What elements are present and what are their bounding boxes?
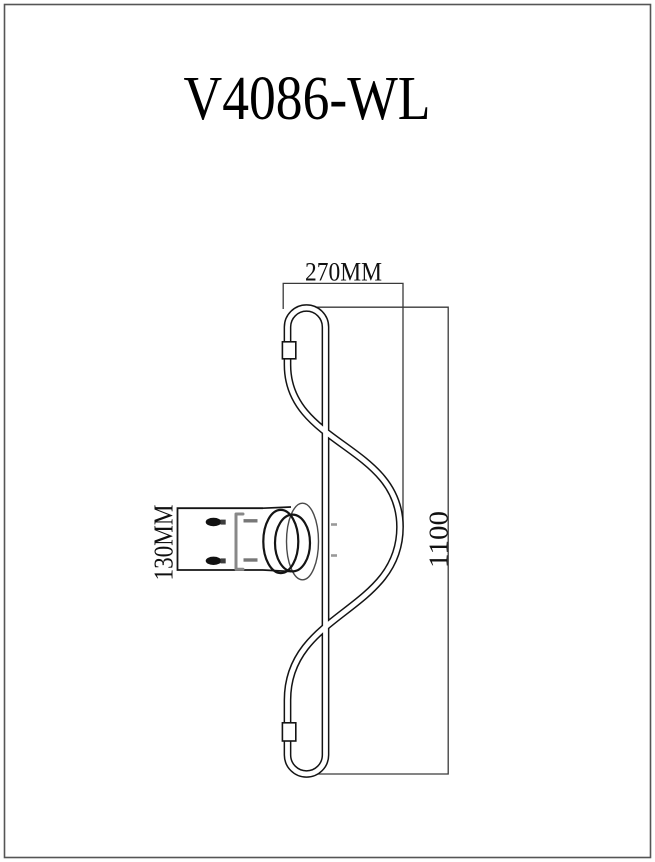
- screw-icon: [206, 557, 222, 565]
- spec-sheet-page: V4086-WL: [0, 0, 655, 862]
- tube-connector-top: [282, 342, 295, 359]
- product-model-title: V4086-WL: [184, 65, 431, 133]
- width-dimension-label: 270MM: [305, 258, 382, 287]
- technical-drawing: V4086-WL: [0, 0, 655, 862]
- screw-tip: [221, 520, 226, 525]
- mount-height-dimension-label: 130MM: [149, 505, 179, 581]
- lamp-tube-outline: [288, 308, 401, 774]
- canopy-top-edge: [263, 507, 291, 508]
- lamp-tube-core: [288, 308, 401, 774]
- screw-tip: [221, 558, 226, 563]
- height-dimension-label: 1100: [424, 511, 454, 568]
- screw-icon: [206, 518, 222, 526]
- tube-connector-bottom: [282, 723, 295, 741]
